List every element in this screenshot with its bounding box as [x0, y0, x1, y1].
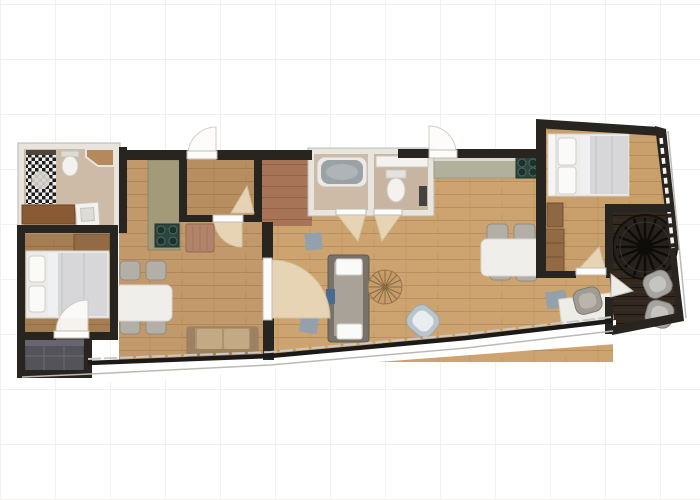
living-door-leaf — [263, 258, 272, 320]
dark-sofa-back — [25, 340, 84, 346]
vestibule-dining-door-leaf — [213, 215, 243, 222]
round-coffee-table — [368, 270, 402, 304]
floor-mat-1 — [304, 232, 323, 251]
nightstand — [547, 203, 563, 227]
vanity-sink — [75, 202, 100, 227]
entry-door-2-arc — [429, 126, 456, 153]
entry-door-2-leaf — [429, 150, 457, 158]
bedroom-left-door-leaf — [54, 331, 89, 338]
corridor-floor-texture — [262, 157, 312, 226]
tan-sofa-cushion-1 — [197, 329, 222, 349]
wall-terrace-left-1 — [605, 212, 613, 274]
bedroom-right-door-leaf — [576, 268, 606, 275]
saddle-counter — [22, 205, 75, 224]
wall-vestibule-bottom-1 — [179, 215, 214, 222]
wall-vestibule-right — [254, 160, 262, 222]
wall-bedroom-left-top — [17, 225, 118, 233]
floor-plan-canvas — [0, 0, 700, 500]
tan-sofa — [187, 327, 258, 357]
wall-left-outer — [17, 225, 25, 378]
toilet-left-icon — [62, 156, 78, 176]
bedroom-left-wardrobe — [74, 234, 110, 253]
wall-bath-left-right — [119, 147, 127, 233]
chair — [146, 261, 166, 280]
bed-left-pillow-2 — [29, 286, 45, 312]
bed-right-headboard — [548, 134, 556, 196]
wc-radiator — [419, 186, 427, 206]
bed-right-pillow-1 — [558, 138, 576, 165]
bathtub-water — [326, 164, 358, 180]
wall-top-hall-2 — [216, 150, 312, 160]
floor-plan-drawing — [0, 0, 700, 500]
wall-top-hall-1 — [119, 150, 188, 160]
wall-vestibule-bottom-2 — [242, 215, 262, 222]
shower-drain-icon — [32, 171, 50, 189]
balcony-corner-sofa — [25, 340, 84, 372]
dining-table-left — [115, 285, 172, 321]
bathroom-center-door-leaf — [336, 209, 366, 215]
hob-right — [516, 157, 539, 178]
wc-door-leaf — [374, 209, 402, 215]
tan-sofa-arm-left — [187, 327, 195, 357]
wall-top-living-1 — [398, 149, 430, 158]
wall-top-living-2 — [456, 149, 541, 158]
bed-left-pillow-1 — [29, 256, 45, 282]
wall-bedroom-left-bottom-2 — [88, 332, 118, 340]
dining-table-right — [481, 239, 543, 276]
bed-right-sheet — [580, 136, 590, 194]
hob-left — [155, 224, 179, 247]
shower-shelf — [26, 150, 56, 155]
chair — [120, 261, 140, 280]
wall-bedroom-left-right — [110, 233, 118, 340]
wc-toilet-cistern — [386, 170, 406, 178]
bathtub — [317, 157, 367, 187]
wall-bedroom-right-bottom-1 — [541, 271, 576, 278]
tan-sofa-cushion-2 — [224, 329, 249, 349]
bed-right-pillow-2 — [558, 167, 576, 194]
toilet-wc-icon — [387, 178, 405, 202]
wall-terrace-top — [605, 204, 672, 212]
gray-sofa — [326, 255, 369, 342]
gray-sofa-pillow-top — [336, 259, 362, 275]
wall-bedroom-left-bottom-1 — [17, 332, 56, 340]
wall-bedroom-right-left — [536, 123, 546, 278]
bed-left-sheet — [48, 253, 58, 316]
entry-door-1-leaf — [187, 151, 217, 159]
gray-sofa-pillow-bottom — [337, 324, 362, 339]
bed-right — [548, 134, 629, 196]
bathroom-left — [18, 143, 120, 233]
wall-divider-top — [262, 222, 273, 260]
wall-vestibule-left — [179, 160, 187, 222]
bath-block — [308, 148, 434, 216]
